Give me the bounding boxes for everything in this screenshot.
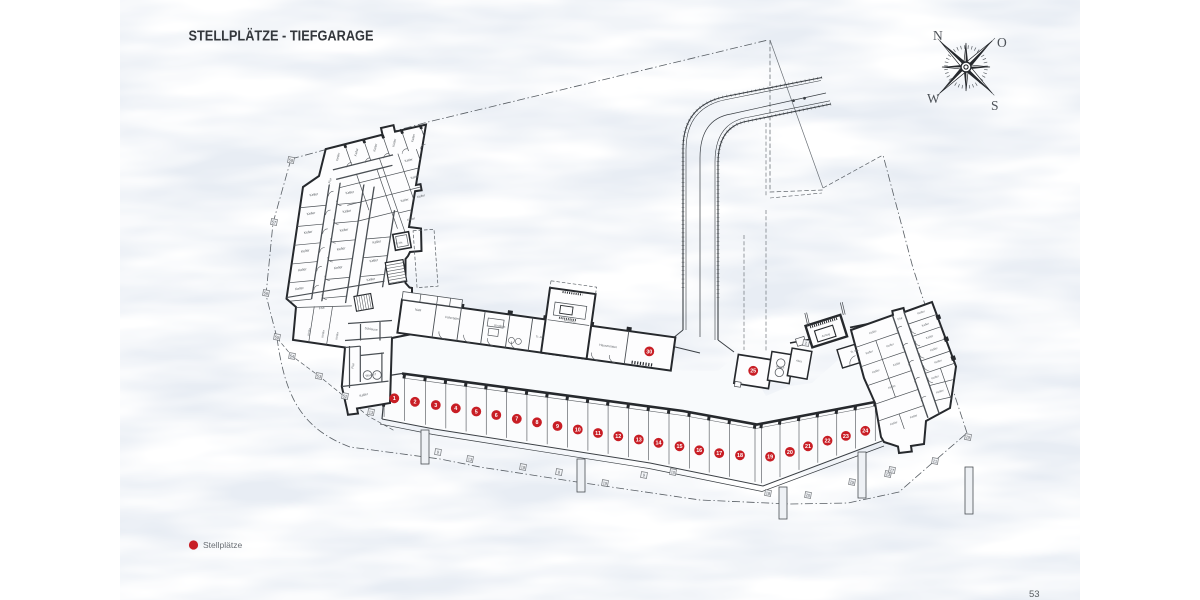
- svg-text:15: 15: [677, 444, 683, 450]
- svg-text:6: 6: [495, 413, 498, 419]
- svg-text:O: O: [997, 35, 1007, 50]
- svg-text:Stellplätze: Stellplätze: [203, 540, 242, 550]
- svg-text:24: 24: [862, 429, 868, 435]
- svg-text:W: W: [927, 91, 940, 106]
- svg-text:2: 2: [414, 400, 417, 406]
- svg-text:9: 9: [556, 424, 559, 430]
- svg-text:S: S: [991, 98, 999, 113]
- svg-text:4: 4: [454, 406, 457, 412]
- svg-text:5: 5: [475, 409, 478, 415]
- svg-text:25: 25: [750, 369, 756, 375]
- svg-text:22: 22: [825, 439, 831, 445]
- svg-text:8: 8: [536, 420, 539, 426]
- svg-text:13: 13: [636, 437, 642, 443]
- svg-text:30: 30: [646, 349, 652, 355]
- svg-text:1: 1: [393, 396, 396, 402]
- svg-text:10: 10: [575, 427, 581, 433]
- svg-text:16: 16: [696, 448, 702, 454]
- svg-text:18: 18: [737, 453, 743, 459]
- svg-text:53: 53: [1029, 589, 1040, 600]
- svg-text:7: 7: [515, 417, 518, 423]
- svg-text:21: 21: [805, 444, 811, 450]
- svg-text:19: 19: [767, 455, 773, 461]
- svg-text:14: 14: [656, 441, 662, 447]
- svg-text:20: 20: [787, 450, 793, 456]
- svg-text:11: 11: [595, 431, 601, 437]
- svg-text:N: N: [933, 28, 943, 43]
- svg-text:23: 23: [843, 434, 849, 440]
- svg-text:12: 12: [615, 434, 621, 440]
- svg-text:STELLPLÄTZE - TIEFGARAGE: STELLPLÄTZE - TIEFGARAGE: [189, 28, 374, 45]
- svg-text:3: 3: [434, 403, 437, 409]
- svg-text:17: 17: [716, 451, 722, 457]
